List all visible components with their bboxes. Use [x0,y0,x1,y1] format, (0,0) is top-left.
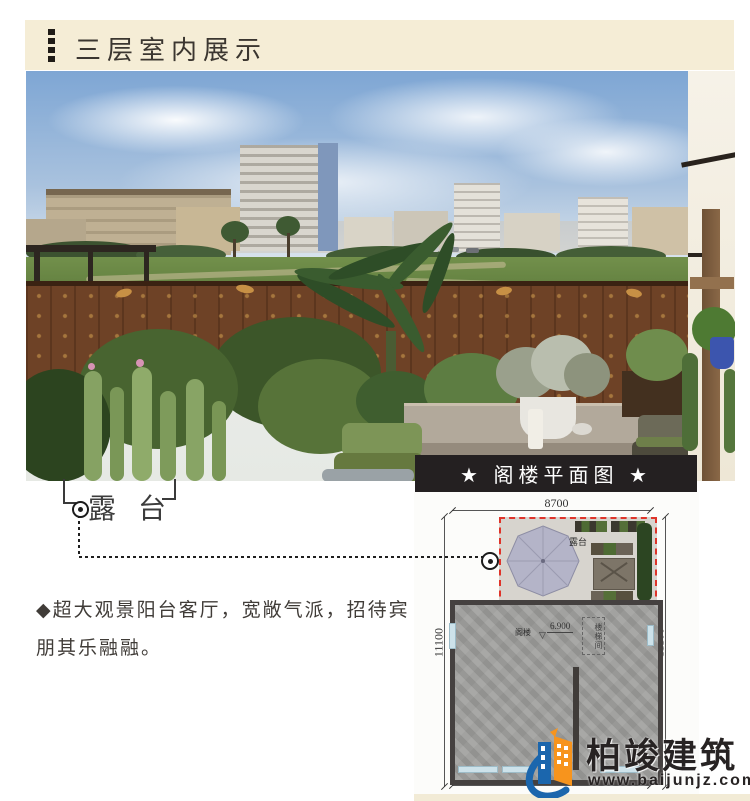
vine [682,353,698,451]
cactus [110,387,124,481]
brand-logo-icon [524,728,588,798]
callout-point-icon [481,552,499,570]
cactus [212,401,226,481]
blue-pot [710,337,734,369]
building [578,197,628,251]
vine [724,369,735,453]
flower [88,363,95,370]
cactus [186,379,204,481]
building [504,213,560,251]
building [318,143,338,251]
cactus [84,371,102,481]
brand-website: www.baijunjz.com [588,772,750,790]
candle [528,409,543,449]
dimension-line-top [452,510,651,511]
flower [136,359,144,367]
planter-bench [575,521,607,532]
cactus [160,391,176,481]
description-line2: 朋其乐融融。 [36,630,466,668]
dimension-top: 8700 [414,496,699,511]
cactus [132,367,152,481]
plan-window [647,625,654,646]
section-title: 三层室内展示 [75,30,267,67]
plan-elevation-value: 6.900 [547,621,573,633]
plan-bench [591,543,633,555]
cup [572,423,592,435]
plan-stairwell: 楼梯间 [582,617,605,655]
plan-elevation-mark: ▽ [539,630,546,641]
building [240,145,322,251]
callout-dotted-line-horizontal [79,556,483,558]
floorplan-title-bar: ★ 阁楼平面图 ★ [415,455,697,492]
plan-window [458,766,498,773]
description-text: ◆超大观景阳台客厅，宽敞气派，招待宾 朋其乐融融。 [36,592,466,668]
plan-terrace-zone: 露台 [499,517,657,607]
bracket-left-icon [63,479,76,504]
page: { "header": { "title": "三层室内展示" }, "anno… [0,0,750,801]
plan-room-label: 阁楼 [515,627,531,638]
flower-bouquet [564,353,610,397]
parked-car [466,248,479,253]
section-header: 三层室内展示 [25,20,734,70]
terrace-photo [26,71,735,481]
building [454,183,500,251]
plan-plant [637,523,652,601]
callout-point-icon [72,501,89,518]
description-line1: ◆超大观景阳台客厅，宽敞气派，招待宾 [36,592,466,630]
brand-logo: 柏竣建筑 www.baijunjz.com [524,726,750,800]
callout-dotted-line-vertical [78,515,80,557]
cushion [342,423,422,457]
dim-tick [441,783,448,790]
wood-crossarm [690,277,734,289]
plant [626,329,688,381]
terrace-callout-label: 露台 [88,487,188,527]
cloud [496,117,716,187]
dashed-accent-bar-icon [48,29,55,63]
floorplan-title: ★ 阁楼平面图 ★ [460,459,652,488]
cushion [322,469,414,481]
plan-terrace-label: 露台 [569,535,587,548]
plan-window [449,623,456,649]
